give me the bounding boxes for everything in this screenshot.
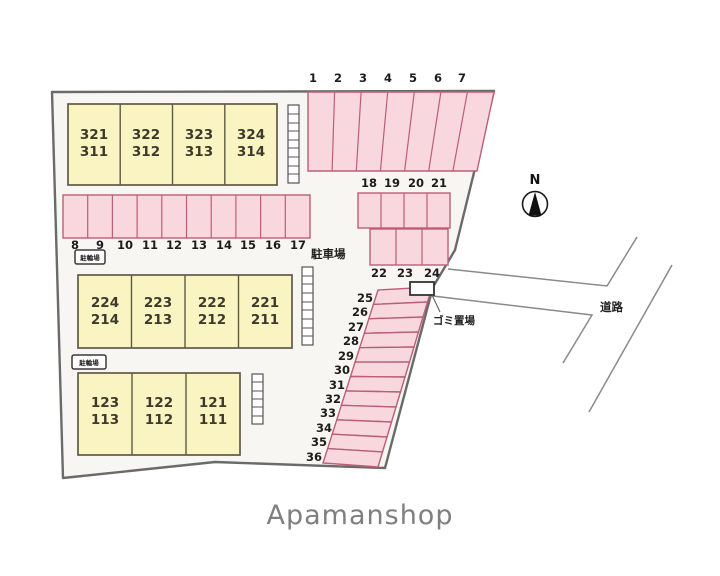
parking-stall bbox=[346, 377, 405, 393]
stall-number: 16 bbox=[265, 238, 281, 252]
room-label: 221 bbox=[251, 295, 279, 311]
parking-lot-label: 駐車場 bbox=[311, 247, 346, 261]
stall-number: 5 bbox=[409, 71, 417, 85]
badge-label: 駐輪場 bbox=[80, 253, 100, 262]
compass-icon: N bbox=[523, 173, 548, 217]
room-label: 224 bbox=[91, 295, 119, 311]
stall-number: 10 bbox=[117, 238, 133, 252]
room-label: 212 bbox=[198, 312, 226, 328]
garbage-leader-line bbox=[432, 295, 440, 312]
parking-stall bbox=[351, 362, 410, 377]
stall-number: 26 bbox=[352, 305, 368, 319]
room-label: 211 bbox=[251, 312, 279, 328]
parking-stall bbox=[360, 332, 419, 348]
stall-number: 19 bbox=[384, 176, 400, 190]
compass-north-label: N bbox=[530, 173, 541, 188]
room-label: 222 bbox=[198, 295, 226, 311]
stall-number: 13 bbox=[191, 238, 207, 252]
storage-rack-top bbox=[288, 105, 299, 183]
stall-number: 35 bbox=[311, 435, 327, 449]
stall-number: 17 bbox=[290, 238, 306, 252]
room-label: 213 bbox=[144, 312, 172, 328]
building-top: 321 311 322 312 323 313 324 314 bbox=[68, 104, 277, 185]
building-middle: 224 214 223 213 222 212 221 211 bbox=[78, 275, 292, 348]
parking-stall bbox=[323, 449, 383, 467]
road-edge-lower bbox=[433, 296, 592, 363]
parking-row-1-7: 1 2 3 4 5 6 7 bbox=[308, 71, 494, 171]
bicycle-area-badge-2: 駐輪場 bbox=[72, 355, 106, 369]
stall-number: 24 bbox=[424, 266, 440, 280]
stall-number: 31 bbox=[329, 378, 345, 392]
room-label: 324 bbox=[237, 127, 265, 143]
stall-number: 7 bbox=[458, 71, 466, 85]
stall-number: 14 bbox=[216, 238, 232, 252]
stall-number: 33 bbox=[320, 406, 336, 420]
site-plan: 道路 N 1 2 3 4 5 6 7 8 9 10 11 bbox=[0, 0, 720, 576]
room-label: 111 bbox=[199, 412, 227, 428]
parking-stall bbox=[369, 302, 428, 319]
badge-label: 駐輪場 bbox=[79, 358, 99, 367]
stall-number: 20 bbox=[408, 176, 424, 190]
storage-rack-outline bbox=[288, 105, 299, 183]
stall-number: 21 bbox=[431, 176, 447, 190]
stall-number: 36 bbox=[306, 450, 322, 464]
stall-number: 11 bbox=[142, 238, 158, 252]
room-label: 312 bbox=[132, 144, 160, 160]
stall-number: 15 bbox=[240, 238, 256, 252]
parking-stall bbox=[355, 347, 414, 362]
storage-rack-outline bbox=[302, 267, 313, 345]
stall-number: 6 bbox=[434, 71, 442, 85]
stall-number: 22 bbox=[371, 266, 387, 280]
building-bottom: 123 113 122 112 121 111 bbox=[78, 373, 240, 455]
stall-number: 34 bbox=[316, 421, 332, 435]
road-edge-upper bbox=[448, 237, 637, 286]
stall-number: 32 bbox=[325, 392, 341, 406]
room-label: 323 bbox=[185, 127, 213, 143]
garbage-box bbox=[410, 282, 434, 295]
room-label: 112 bbox=[145, 412, 173, 428]
stall-number: 4 bbox=[384, 71, 392, 85]
room-label: 214 bbox=[91, 312, 119, 328]
road-edge-diagonal bbox=[589, 265, 672, 412]
site-plan-page: 道路 N 1 2 3 4 5 6 7 8 9 10 11 bbox=[0, 0, 720, 576]
storage-rack-middle bbox=[302, 267, 313, 345]
stall-number: 1 bbox=[309, 71, 317, 85]
room-label: 313 bbox=[185, 144, 213, 160]
stall-number: 29 bbox=[338, 349, 354, 363]
stall-number: 18 bbox=[361, 176, 377, 190]
parking-stall bbox=[364, 317, 423, 333]
parking-stall-group bbox=[370, 229, 448, 265]
parking-stall-group bbox=[308, 92, 494, 171]
room-label: 314 bbox=[237, 144, 265, 160]
road-label: 道路 bbox=[600, 300, 623, 314]
storage-rack-bottom bbox=[252, 374, 263, 424]
stall-number: 2 bbox=[334, 71, 342, 85]
stall-number: 12 bbox=[166, 238, 182, 252]
room-label: 121 bbox=[199, 395, 227, 411]
bicycle-area-badge-1: 駐輪場 bbox=[75, 250, 105, 264]
stall-number: 3 bbox=[359, 71, 367, 85]
room-label: 322 bbox=[132, 127, 160, 143]
brand-caption: Apamanshop bbox=[0, 500, 720, 531]
parking-row-22-24: 22 23 24 bbox=[370, 229, 448, 280]
stall-number: 30 bbox=[334, 363, 350, 377]
room-label: 123 bbox=[91, 395, 119, 411]
parking-stall bbox=[341, 391, 400, 407]
compass-needle bbox=[529, 192, 542, 216]
stall-number: 28 bbox=[343, 334, 359, 348]
stall-number: 23 bbox=[397, 266, 413, 280]
room-label: 113 bbox=[91, 412, 119, 428]
garbage-label: ゴミ置場 bbox=[433, 314, 475, 327]
stall-number: 25 bbox=[357, 291, 373, 305]
room-label: 311 bbox=[80, 144, 108, 160]
room-label: 122 bbox=[145, 395, 173, 411]
room-label: 321 bbox=[80, 127, 108, 143]
stall-number: 27 bbox=[348, 320, 364, 334]
room-label: 223 bbox=[144, 295, 172, 311]
